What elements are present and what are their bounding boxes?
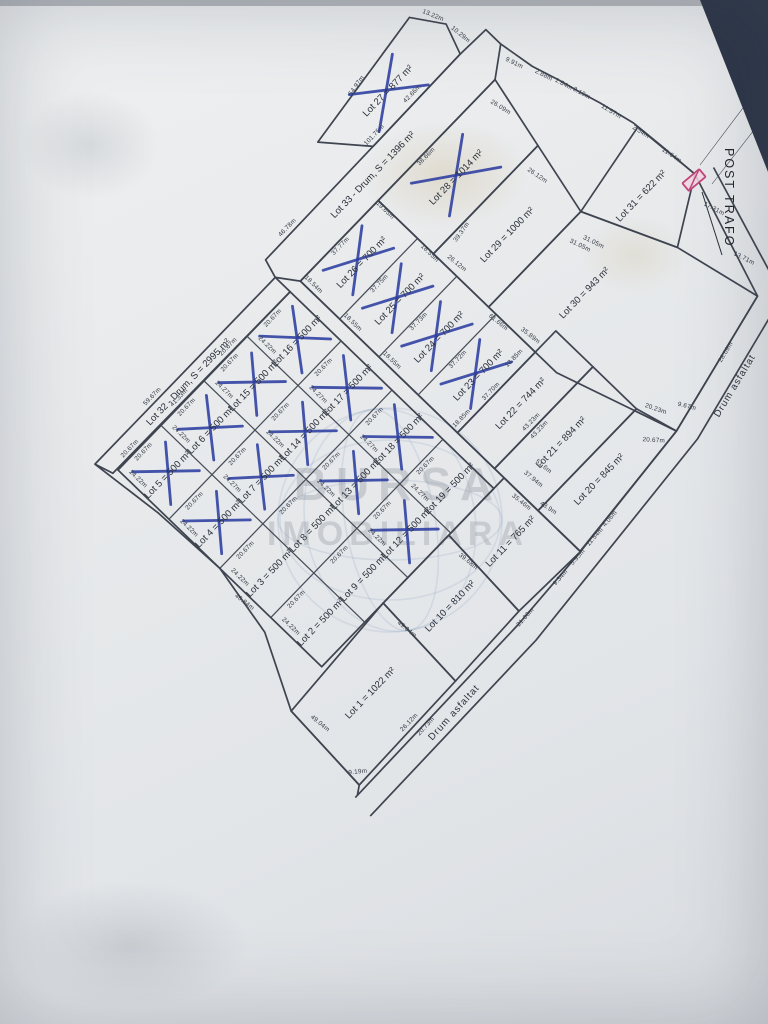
dim-label: 38.66m <box>416 146 437 167</box>
dim-label: 24.22m <box>229 567 250 588</box>
dim-label: 4.06m <box>601 509 618 528</box>
dim-label: 37.72m <box>448 349 469 370</box>
dim-label: 26.12m <box>526 166 549 184</box>
dim-label: 20.67m <box>270 401 291 422</box>
dim-label: 20.67m <box>184 490 205 511</box>
dim-label: 24.27m <box>221 473 242 494</box>
dim-label: 35.89m <box>519 326 541 345</box>
dim-label: 24.22m <box>170 424 191 445</box>
photo-corner-background <box>700 0 768 172</box>
dim-label: 11.57m <box>600 103 623 120</box>
dim-label: 37.73m <box>408 311 429 332</box>
dim-label: 9.34m <box>552 568 570 587</box>
dim-label: 49.04m <box>309 714 331 734</box>
dim-label: 26.12m <box>446 254 468 274</box>
dim-label: 20.67m <box>235 540 256 561</box>
dim-label: 13.71m <box>732 250 755 266</box>
lot-6-label: Lot 6 = 500 m² <box>185 404 236 456</box>
dim-label: 11.54m <box>585 526 605 547</box>
dim-label: 46.78m <box>277 217 298 238</box>
dim-label: 11.64m <box>660 146 682 164</box>
photographed-cadastral-plan: BURSA IMOBILIARA <box>0 0 768 1024</box>
right-road-label: Drum asfaltat <box>712 353 758 420</box>
plan-drawing: BURSA IMOBILIARA <box>0 0 768 1024</box>
dim-label: 20.67m <box>286 589 307 610</box>
dim-label: 28.09m <box>717 341 735 364</box>
dim-label: 18.85m <box>451 408 472 429</box>
lot-2-label: Lot 2 = 500 m² <box>295 596 346 648</box>
lot-labels: Lot 5 = 500 m² Lot 6 = 500 m² Lot 15 = 5… <box>51 0 768 733</box>
dim-label: 2.19m <box>572 86 592 101</box>
dim-label: 2.88m <box>534 68 554 83</box>
dim-label: 5.95m <box>569 548 587 567</box>
dim-label: 37.94m <box>522 470 544 490</box>
lot-1-label: Lot 1 = 1022 m² <box>343 665 398 721</box>
lot-31-label: Lot 31 = 622 m² <box>614 168 669 224</box>
lot-20-label: Lot 20 = 845 m² <box>572 452 627 508</box>
dim-label: 37.75m <box>369 273 390 294</box>
post-trafo-leader-line <box>702 192 722 255</box>
photo-top-edge <box>0 0 768 6</box>
dim-label: 18.55m <box>342 312 363 333</box>
lot-20-parcel <box>538 400 687 551</box>
post-trafo-label: POST TRAFO <box>722 148 736 247</box>
lot-29-label: Lot 29 = 1000 m² <box>478 205 536 265</box>
dim-label: 9.19m <box>348 768 367 777</box>
dim-label: 2.54m <box>631 124 651 140</box>
dim-label: 20.67m <box>313 357 334 378</box>
dim-label: 18.55m <box>381 350 402 371</box>
lot-30-label: Lot 30 = 943 m² <box>557 265 612 321</box>
dim-label: 20.67m <box>227 446 248 467</box>
lot-3-label: Lot 3 = 500 m² <box>244 547 295 599</box>
dim-label: 39.68m <box>457 552 479 572</box>
dim-label: 19.65m <box>375 200 396 221</box>
dim-label: 1.84m <box>554 77 574 92</box>
dim-label: 20.67m <box>642 436 665 445</box>
dim-label: 18.54m <box>303 274 324 295</box>
dim-label: 10.29m <box>449 25 471 45</box>
dim-label: 24.22m <box>280 616 301 637</box>
dim-label: 18.55m <box>419 243 440 264</box>
lot-16-label: Lot 16 = 500 m² <box>270 313 325 369</box>
